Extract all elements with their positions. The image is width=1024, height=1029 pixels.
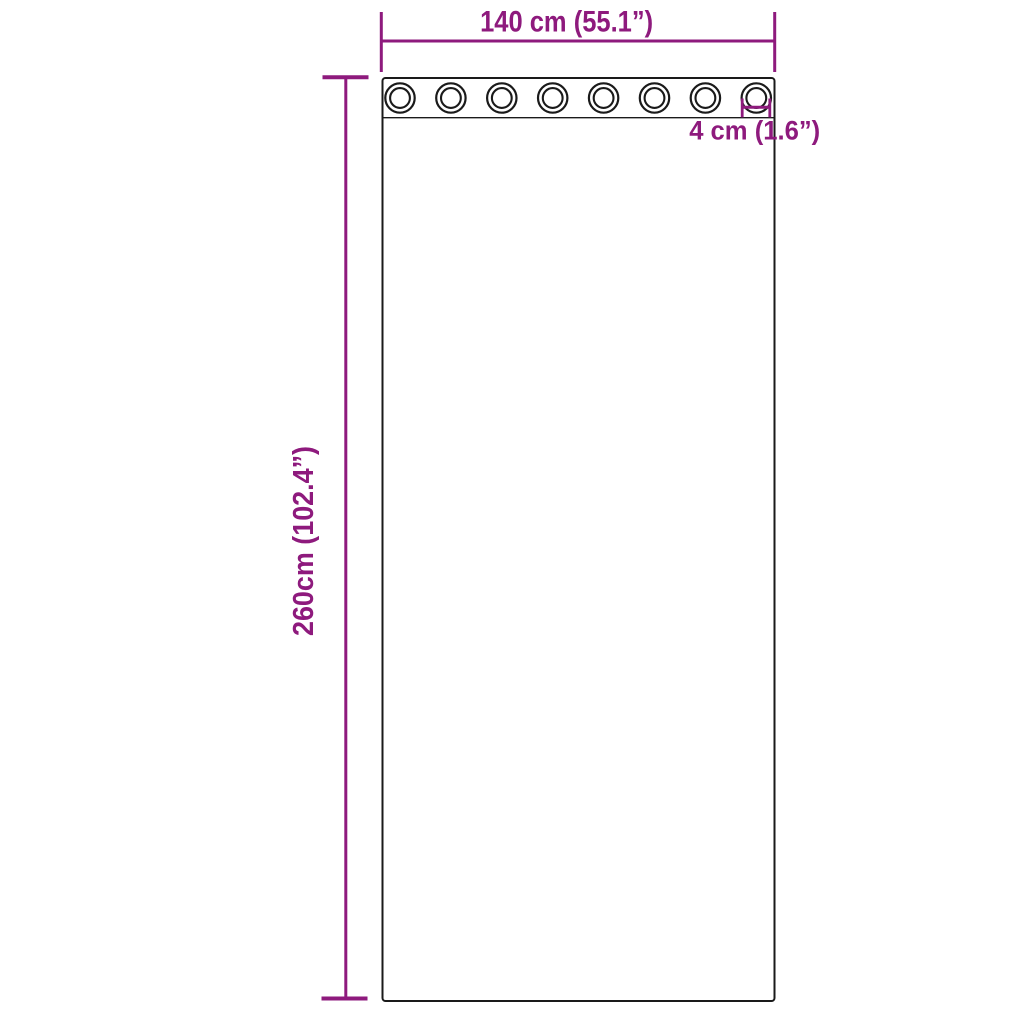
svg-text:140 cm (55.1”): 140 cm (55.1”): [480, 5, 653, 38]
svg-text:4 cm (1.6”): 4 cm (1.6”): [689, 115, 820, 145]
svg-text:260cm (102.4”): 260cm (102.4”): [288, 446, 320, 636]
